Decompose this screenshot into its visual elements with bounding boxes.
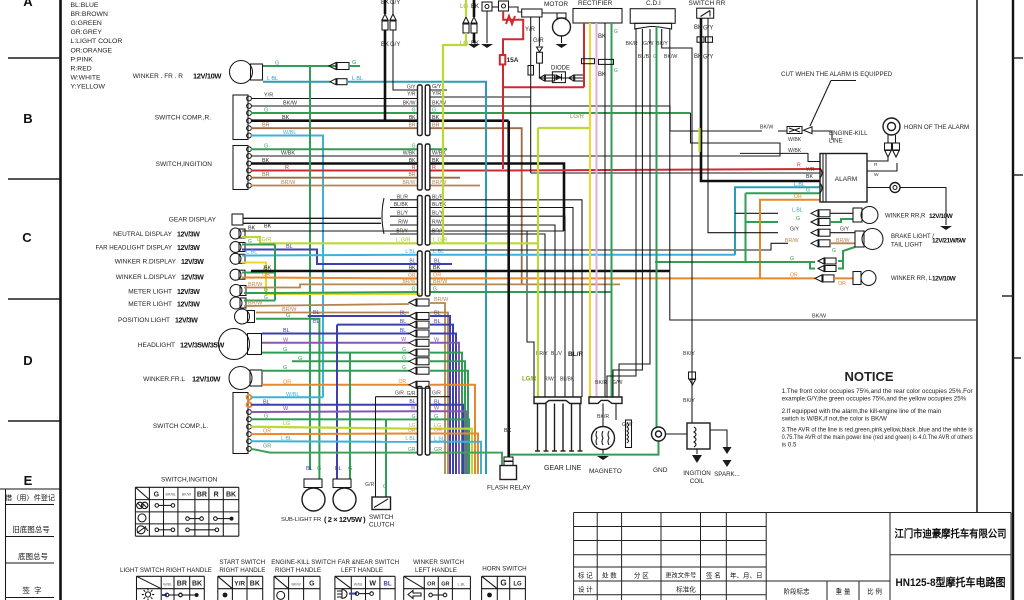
svg-text:更改文件号: 更改文件号 bbox=[665, 572, 696, 580]
svg-text:RIGHT HANDLE: RIGHT HANDLE bbox=[219, 567, 265, 574]
svg-text:BL/R: BL/R bbox=[568, 351, 583, 358]
svg-text:标 记: 标 记 bbox=[578, 571, 593, 580]
svg-text:G/Y: G/Y bbox=[432, 84, 442, 90]
svg-text:NEUTRAL DISPLAY: NEUTRAL DISPLAY bbox=[113, 231, 173, 238]
svg-text:LG: LG bbox=[283, 421, 290, 427]
svg-text:SWITCH RR: SWITCH RR bbox=[689, 0, 726, 7]
svg-text:BK: BK bbox=[598, 34, 606, 40]
svg-text:WINKER L.DISPLAY: WINKER L.DISPLAY bbox=[116, 274, 177, 281]
svg-text:处 数: 处 数 bbox=[602, 571, 617, 580]
svg-text:BL: BL bbox=[335, 466, 342, 472]
svg-text:example:G/Y,the green occupies: example:G/Y,the green occupies 75%,and t… bbox=[782, 396, 967, 403]
svg-text:12V/3W: 12V/3W bbox=[177, 302, 200, 309]
svg-text:BL/R: BL/R bbox=[397, 194, 409, 200]
svg-text:BL: BL bbox=[434, 319, 441, 325]
svg-text:W: W bbox=[283, 406, 289, 412]
svg-text:G: G bbox=[264, 414, 268, 420]
svg-text:A: A bbox=[23, 0, 33, 9]
svg-text:G: G bbox=[806, 188, 810, 194]
svg-text:G: G bbox=[402, 356, 406, 362]
svg-text:ENGINE-KILL SWITCH: ENGINE-KILL SWITCH bbox=[271, 559, 335, 566]
svg-text:BK: BK bbox=[694, 54, 702, 60]
svg-text:OR: OR bbox=[263, 429, 271, 435]
svg-text:OR: OR bbox=[399, 379, 407, 385]
svg-text:NOTICE: NOTICE bbox=[844, 369, 893, 384]
svg-text:BR/W: BR/W bbox=[402, 279, 415, 285]
svg-text:G/W: G/W bbox=[643, 41, 653, 47]
svg-text:W/BL: W/BL bbox=[286, 392, 299, 398]
svg-text:BK: BK bbox=[598, 72, 606, 78]
svg-text:HORN OF THE ALARM: HORN OF THE ALARM bbox=[904, 124, 969, 131]
svg-text:BL: BL bbox=[434, 399, 441, 405]
svg-text:Y/R: Y/R bbox=[432, 91, 441, 97]
svg-text:Y/R: Y/R bbox=[264, 93, 273, 99]
svg-text:WINKER . FR . R: WINKER . FR . R bbox=[133, 73, 184, 80]
svg-text:C.D.I: C.D.I bbox=[646, 0, 661, 7]
svg-text:G: G bbox=[790, 256, 794, 262]
svg-text:Y/R: Y/R bbox=[234, 580, 245, 587]
svg-text:SPARK...: SPARK... bbox=[714, 471, 740, 478]
svg-text:MAGNETO: MAGNETO bbox=[589, 468, 622, 475]
svg-text:标准化: 标准化 bbox=[676, 585, 696, 594]
svg-text:FAR &NEAR SWITCH: FAR &NEAR SWITCH bbox=[338, 559, 399, 566]
svg-text:LEFT HANDLE: LEFT HANDLE bbox=[415, 567, 457, 574]
svg-text:OR: OR bbox=[427, 581, 435, 587]
svg-text:OR: OR bbox=[434, 428, 442, 434]
svg-text:BL: BL bbox=[409, 258, 415, 264]
svg-text:G: G bbox=[264, 295, 268, 301]
svg-text:L BL: L BL bbox=[281, 436, 292, 442]
svg-text:BR: BR bbox=[262, 172, 270, 178]
svg-text:BL/V: BL/V bbox=[551, 351, 563, 357]
svg-text:BK/W: BK/W bbox=[182, 493, 192, 497]
svg-text:签 字: 签 字 bbox=[22, 585, 41, 595]
svg-text:BK: BK bbox=[264, 224, 272, 230]
svg-text:BL: BL bbox=[400, 328, 406, 334]
svg-text:R: R bbox=[432, 165, 436, 171]
svg-text:0.75.The AVR of the main power: 0.75.The AVR of the main power line (red… bbox=[782, 434, 973, 441]
svg-text:W/BK: W/BK bbox=[403, 150, 416, 156]
svg-text:G/Y: G/Y bbox=[407, 84, 416, 90]
svg-text:BR/W: BR/W bbox=[402, 180, 415, 186]
svg-text:BL: BL bbox=[286, 244, 293, 250]
svg-text:RECTIFIER: RECTIFIER bbox=[578, 0, 613, 7]
svg-text:R:RED: R:RED bbox=[71, 65, 92, 72]
svg-text:R: R bbox=[412, 165, 416, 171]
svg-text:BL: BL bbox=[283, 328, 290, 334]
svg-text:BL: BL bbox=[263, 399, 270, 405]
svg-text:12V/3W: 12V/3W bbox=[177, 289, 200, 296]
svg-text:BR/W: BR/W bbox=[785, 238, 799, 244]
svg-text:GR: GR bbox=[441, 581, 449, 587]
svg-text:LG/R: LG/R bbox=[570, 114, 585, 120]
svg-text:RIGHT HANDLE: RIGHT HANDLE bbox=[275, 567, 321, 574]
svg-text:W:WHITE: W:WHITE bbox=[71, 74, 102, 81]
svg-text:BL: BL bbox=[434, 259, 441, 265]
svg-text:WINKER RR,R: WINKER RR,R bbox=[885, 214, 926, 220]
svg-text:12V/10W: 12V/10W bbox=[932, 276, 957, 283]
svg-text:BL/Y: BL/Y bbox=[397, 211, 409, 217]
svg-text:G: G bbox=[309, 580, 315, 587]
svg-text:R/W: R/W bbox=[432, 220, 442, 226]
svg-text:BK/W: BK/W bbox=[283, 101, 298, 107]
svg-text:BR:BROWN: BR:BROWN bbox=[71, 11, 108, 18]
svg-text:LG: LG bbox=[513, 581, 522, 587]
svg-text:LG/R: LG/R bbox=[522, 377, 537, 383]
svg-text:BRAKE LIGHT /: BRAKE LIGHT / bbox=[891, 234, 934, 240]
svg-text:R/W: R/W bbox=[398, 220, 408, 226]
svg-text:旧底图总号: 旧底图总号 bbox=[12, 524, 50, 534]
svg-text:SWITCH COMP.,L.: SWITCH COMP.,L. bbox=[153, 423, 208, 430]
svg-text:MOTOR: MOTOR bbox=[544, 1, 568, 8]
svg-text:G/R: G/R bbox=[533, 38, 544, 44]
svg-text:L.G/R: L.G/R bbox=[396, 238, 410, 244]
svg-text:L.G/R: L.G/R bbox=[257, 237, 271, 243]
svg-text:SWITCH,INGITION: SWITCH,INGITION bbox=[161, 477, 218, 484]
svg-text:BR/W: BR/W bbox=[432, 180, 447, 186]
svg-text:G: G bbox=[412, 286, 416, 292]
svg-text:G: G bbox=[402, 347, 406, 353]
svg-text:LINE: LINE bbox=[829, 138, 843, 145]
svg-text:GR: GR bbox=[263, 443, 271, 449]
svg-text:L BL: L BL bbox=[405, 436, 415, 442]
svg-text:Y:YELLOW: Y:YELLOW bbox=[71, 83, 106, 90]
svg-text:BK: BK bbox=[409, 158, 416, 164]
svg-text:OR: OR bbox=[408, 428, 416, 434]
svg-text:ENGINE-KILL: ENGINE-KILL bbox=[829, 130, 868, 137]
svg-text:BK/R: BK/R bbox=[597, 414, 609, 420]
svg-text:BK/R: BK/R bbox=[595, 380, 607, 386]
svg-text:BK: BK bbox=[282, 115, 290, 121]
svg-text:BR/Y: BR/Y bbox=[396, 229, 408, 235]
svg-text:G: G bbox=[264, 288, 268, 294]
svg-text:ALARM: ALARM bbox=[835, 176, 857, 183]
svg-text:E: E bbox=[24, 473, 33, 488]
svg-text:L.BL: L.BL bbox=[792, 207, 803, 213]
svg-text:12V/10W: 12V/10W bbox=[193, 72, 222, 81]
svg-text:G: G bbox=[796, 216, 800, 222]
svg-text:15A: 15A bbox=[507, 57, 519, 64]
svg-text:BK: BK bbox=[694, 25, 702, 31]
svg-text:R: R bbox=[285, 165, 289, 171]
svg-text:HORN SWITCH: HORN SWITCH bbox=[482, 566, 526, 573]
svg-text:BR: BR bbox=[409, 123, 416, 129]
svg-text:阶段标志: 阶段标志 bbox=[784, 587, 811, 596]
svg-text:P:PINK: P:PINK bbox=[71, 56, 94, 63]
svg-text:BL/B: BL/B bbox=[638, 54, 650, 60]
svg-text:B: B bbox=[23, 111, 32, 126]
svg-text:BR/W: BR/W bbox=[248, 282, 263, 288]
svg-text:CLUTCH: CLUTCH bbox=[369, 522, 394, 529]
svg-text:BK/W: BK/W bbox=[403, 100, 416, 106]
svg-text:G: G bbox=[433, 287, 437, 293]
svg-text:DIODE: DIODE bbox=[551, 66, 570, 72]
svg-text:W: W bbox=[283, 337, 289, 343]
svg-text:G: G bbox=[614, 68, 618, 74]
svg-text:G/Y: G/Y bbox=[840, 227, 849, 233]
svg-text:2.If equipped with the alarm,t: 2.If equipped with the alarm,the kill-en… bbox=[782, 408, 942, 415]
svg-text:GR:GREY: GR:GREY bbox=[71, 29, 103, 36]
svg-text:W/BK: W/BK bbox=[432, 151, 446, 157]
svg-text:BK/W: BK/W bbox=[760, 125, 773, 131]
svg-text:BK: BK bbox=[409, 115, 416, 121]
svg-text:CUT WHEN THE ALARM IS EQUIPPED: CUT WHEN THE ALARM IS EQUIPPED bbox=[781, 71, 893, 78]
svg-text:OR: OR bbox=[283, 379, 291, 385]
svg-text:SWITCH: SWITCH bbox=[369, 514, 393, 521]
svg-text:D: D bbox=[23, 353, 32, 368]
svg-text:BL/BK: BL/BK bbox=[560, 377, 575, 383]
svg-text:3.The AVR of the line is red,g: 3.The AVR of the line is red,green,pink,… bbox=[782, 427, 973, 434]
svg-text:G: G bbox=[412, 414, 416, 420]
svg-text:GR: GR bbox=[408, 447, 416, 453]
svg-text:12V/3W: 12V/3W bbox=[177, 232, 200, 239]
svg-text:BK: BK bbox=[409, 265, 416, 271]
svg-text:G: G bbox=[412, 144, 416, 150]
svg-text:L.BL: L.BL bbox=[457, 582, 465, 586]
svg-text:G/Y: G/Y bbox=[790, 227, 799, 233]
svg-text:G: G bbox=[317, 466, 321, 472]
svg-text:12V/3W: 12V/3W bbox=[177, 245, 200, 252]
svg-text:BK: BK bbox=[504, 428, 512, 434]
svg-text:BK: BK bbox=[250, 580, 260, 587]
svg-text:BK: BK bbox=[248, 226, 256, 232]
svg-text:BR: BR bbox=[177, 580, 187, 587]
svg-text:( 2 × 12V5W ): ( 2 × 12V5W ) bbox=[324, 515, 366, 524]
svg-text:BL: BL bbox=[400, 310, 406, 316]
svg-text:底图总号: 底图总号 bbox=[18, 551, 48, 561]
svg-text:BK: BK bbox=[262, 158, 270, 164]
svg-text:BK/W: BK/W bbox=[292, 582, 302, 586]
svg-text:FAR HEADLIGHT DISPLAY: FAR HEADLIGHT DISPLAY bbox=[96, 245, 172, 252]
svg-text:TAIL LIGHT: TAIL LIGHT bbox=[891, 243, 923, 249]
svg-text:OR: OR bbox=[794, 194, 802, 200]
svg-text:BK: BK bbox=[433, 265, 441, 271]
svg-text:R: R bbox=[214, 492, 219, 499]
svg-text:G: G bbox=[352, 60, 356, 66]
svg-text:BR/W: BR/W bbox=[434, 297, 449, 303]
svg-text:G: G bbox=[832, 248, 836, 254]
svg-text:W: W bbox=[401, 337, 406, 343]
svg-text:HN125-8型摩托车电路图: HN125-8型摩托车电路图 bbox=[896, 575, 1006, 589]
svg-text:G/W: G/W bbox=[612, 380, 622, 386]
svg-text:江门市迪豪摩托车有限公司: 江门市迪豪摩托车有限公司 bbox=[895, 527, 1007, 540]
svg-text:G: G bbox=[298, 356, 302, 362]
svg-text:W: W bbox=[411, 406, 416, 412]
svg-text:BL: BL bbox=[409, 399, 415, 405]
svg-text:G: G bbox=[412, 107, 416, 113]
svg-text:LEFT HANDLE: LEFT HANDLE bbox=[341, 567, 383, 574]
svg-text:比 例: 比 例 bbox=[867, 587, 882, 596]
svg-text:12V/10W: 12V/10W bbox=[929, 213, 954, 220]
svg-text:W/BK: W/BK bbox=[788, 148, 802, 154]
svg-text:OR: OR bbox=[790, 272, 798, 278]
svg-text:12V/3W: 12V/3W bbox=[181, 275, 204, 282]
svg-text:重 量: 重 量 bbox=[836, 588, 851, 596]
svg-text:L.BL: L.BL bbox=[246, 250, 257, 256]
svg-text:G/R: G/R bbox=[365, 482, 374, 488]
svg-text:BK: BK bbox=[226, 492, 236, 499]
svg-text:BR/BL: BR/BL bbox=[166, 493, 176, 497]
svg-text:W/BL: W/BL bbox=[283, 130, 296, 136]
svg-text:GEAR LINE: GEAR LINE bbox=[544, 465, 582, 472]
svg-text:12V/3W: 12V/3W bbox=[175, 318, 198, 325]
svg-text:OR: OR bbox=[262, 272, 270, 278]
svg-text:借（用）件登记: 借（用）件登记 bbox=[5, 493, 55, 502]
svg-text:W/BK: W/BK bbox=[281, 151, 295, 157]
svg-text:BR/W: BR/W bbox=[282, 307, 297, 313]
svg-text:W: W bbox=[369, 580, 376, 587]
svg-text:L:LIGHT COLOR: L:LIGHT COLOR bbox=[71, 38, 123, 45]
svg-text:WINKER.FR.L: WINKER.FR.L bbox=[143, 376, 185, 383]
svg-text:BL: BL bbox=[313, 310, 320, 316]
svg-text:年、月、日: 年、月、日 bbox=[730, 571, 763, 580]
svg-text:GR: GR bbox=[434, 447, 442, 453]
svg-text:1.The front color occupies 75%: 1.The front color occupies 75%,and the r… bbox=[782, 388, 973, 395]
svg-text:G/Y: G/Y bbox=[390, 0, 400, 6]
svg-text:L.G/R: L.G/R bbox=[433, 238, 447, 244]
svg-text:G: G bbox=[283, 347, 287, 353]
svg-text:OR: OR bbox=[433, 273, 441, 279]
svg-text:G/Y: G/Y bbox=[390, 42, 400, 48]
svg-text:BR: BR bbox=[262, 123, 270, 129]
svg-text:BK: BK bbox=[806, 174, 813, 180]
svg-text:BR: BR bbox=[197, 492, 207, 499]
svg-text:BK: BK bbox=[432, 115, 440, 121]
svg-text:G: G bbox=[286, 313, 290, 319]
svg-text:BL: BL bbox=[384, 581, 392, 587]
svg-text:L BL: L BL bbox=[267, 76, 278, 82]
svg-text:BL/Y: BL/Y bbox=[432, 211, 444, 217]
svg-text:G: G bbox=[275, 61, 279, 67]
svg-text:switch is W/BK,if not,the colo: switch is W/BK,if not,the color is BK/W bbox=[782, 416, 887, 423]
svg-text:W/BL: W/BL bbox=[354, 582, 363, 586]
svg-text:W: W bbox=[874, 172, 879, 178]
svg-text:L BL: L BL bbox=[434, 436, 445, 442]
svg-text:BR: BR bbox=[432, 123, 440, 129]
svg-text:BR/W: BR/W bbox=[248, 301, 263, 307]
svg-text:G: G bbox=[283, 365, 287, 371]
svg-text:G: G bbox=[614, 29, 618, 35]
svg-text:METER LIGHT: METER LIGHT bbox=[128, 289, 172, 296]
svg-text:BR/W: BR/W bbox=[433, 279, 448, 285]
svg-text:L BL: L BL bbox=[352, 76, 363, 82]
svg-text:G/Y: G/Y bbox=[703, 55, 713, 61]
svg-text:METER LIGHT: METER LIGHT bbox=[128, 301, 172, 308]
svg-text:BK: BK bbox=[192, 580, 202, 587]
svg-text:BR: BR bbox=[409, 172, 416, 178]
svg-text:签 名: 签 名 bbox=[706, 571, 721, 580]
svg-text:W/BL: W/BL bbox=[163, 582, 172, 586]
svg-text:BK/Y: BK/Y bbox=[683, 398, 695, 404]
svg-text:G: G bbox=[500, 578, 506, 587]
svg-text:GND: GND bbox=[653, 467, 668, 474]
svg-text:SWITCH COMP.,R.: SWITCH COMP.,R. bbox=[155, 115, 211, 122]
svg-text:G: G bbox=[264, 144, 268, 150]
svg-text:G: G bbox=[348, 466, 352, 472]
svg-text:R/W: R/W bbox=[544, 377, 554, 383]
svg-text:Y/R: Y/R bbox=[525, 27, 536, 33]
svg-text:SWITCH,INGITION: SWITCH,INGITION bbox=[156, 161, 213, 168]
svg-text:12V/21W/5W: 12V/21W/5W bbox=[932, 238, 967, 245]
svg-text:BL:BLUE: BL:BLUE bbox=[71, 2, 99, 9]
svg-text:BL: BL bbox=[306, 466, 313, 472]
svg-text:Y/R: Y/R bbox=[407, 91, 416, 97]
svg-text:G/R: G/R bbox=[432, 391, 441, 397]
svg-text:BL/BK: BL/BK bbox=[394, 202, 409, 208]
svg-text:BL/R: BL/R bbox=[432, 194, 444, 200]
svg-text:分 区: 分 区 bbox=[634, 571, 649, 580]
svg-text:WINKER SWITCH: WINKER SWITCH bbox=[413, 559, 464, 566]
svg-text:G: G bbox=[383, 484, 387, 490]
svg-text:WINKER R.DISPLAY: WINKER R.DISPLAY bbox=[115, 259, 177, 266]
svg-text:R: R bbox=[874, 162, 878, 168]
svg-text:G/R: G/R bbox=[407, 391, 416, 397]
svg-text:W: W bbox=[434, 337, 440, 343]
svg-text:BK/W: BK/W bbox=[432, 101, 447, 107]
svg-text:is 0.5: is 0.5 bbox=[782, 442, 797, 449]
svg-text:G: G bbox=[402, 365, 406, 371]
svg-text:Y/R: Y/R bbox=[806, 167, 815, 173]
svg-text:C: C bbox=[22, 230, 32, 245]
svg-text:BL: BL bbox=[313, 319, 320, 325]
svg-text:INGITION: INGITION bbox=[683, 470, 711, 477]
svg-text:COIL: COIL bbox=[690, 478, 705, 485]
svg-text:BK/W: BK/W bbox=[812, 314, 827, 320]
svg-text:G: G bbox=[653, 54, 657, 60]
svg-text:BK/Y: BK/Y bbox=[656, 41, 668, 47]
svg-text:W/BK: W/BK bbox=[788, 137, 802, 143]
svg-text:BL/BK: BL/BK bbox=[432, 202, 447, 208]
svg-text:W: W bbox=[434, 406, 440, 412]
svg-text:G/R: G/R bbox=[395, 391, 404, 397]
svg-text:12V/10W: 12V/10W bbox=[192, 375, 221, 384]
svg-text:BK/Y: BK/Y bbox=[683, 351, 695, 357]
svg-text:G: G bbox=[432, 108, 436, 114]
svg-text:BL: BL bbox=[434, 311, 441, 317]
svg-text:设 计: 设 计 bbox=[578, 585, 593, 594]
svg-text:SUB-LIGHT FR: SUB-LIGHT FR bbox=[281, 517, 321, 523]
svg-text:BK: BK bbox=[264, 266, 272, 272]
svg-text:HEADLIGHT: HEADLIGHT bbox=[138, 342, 175, 349]
svg-text:BK: BK bbox=[432, 158, 440, 164]
svg-text:L.BL: L.BL bbox=[794, 182, 805, 188]
svg-text:BR/W: BR/W bbox=[281, 180, 296, 186]
svg-text:LIGHT SWITCH RIGHT HANDLE: LIGHT SWITCH RIGHT HANDLE bbox=[120, 567, 212, 574]
svg-text:WINKER RR, L: WINKER RR, L bbox=[891, 276, 933, 282]
svg-text:G:GREEN: G:GREEN bbox=[71, 20, 102, 27]
svg-text:G: G bbox=[264, 108, 268, 114]
svg-text:BL: BL bbox=[400, 319, 406, 325]
svg-text:BK/R: BK/R bbox=[626, 41, 638, 47]
svg-text:12V/3W: 12V/3W bbox=[181, 259, 204, 266]
svg-text:R: R bbox=[797, 163, 801, 169]
svg-text:OR: OR bbox=[838, 281, 846, 287]
svg-text:FLASH RELAY: FLASH RELAY bbox=[487, 485, 531, 492]
svg-text:G: G bbox=[154, 492, 160, 499]
svg-text:G: G bbox=[434, 414, 438, 420]
svg-text:OR:ORANGE: OR:ORANGE bbox=[71, 47, 113, 54]
svg-text:START SWITCH: START SWITCH bbox=[219, 559, 265, 566]
svg-text:G: G bbox=[248, 239, 252, 245]
svg-text:G/Y: G/Y bbox=[703, 26, 713, 32]
svg-text:POSITION LIGHT: POSITION LIGHT bbox=[118, 317, 170, 324]
svg-text:L BL: L BL bbox=[405, 249, 415, 255]
svg-text:GEAR DISPLAY: GEAR DISPLAY bbox=[169, 217, 217, 224]
svg-text:BK/W: BK/W bbox=[664, 54, 677, 60]
